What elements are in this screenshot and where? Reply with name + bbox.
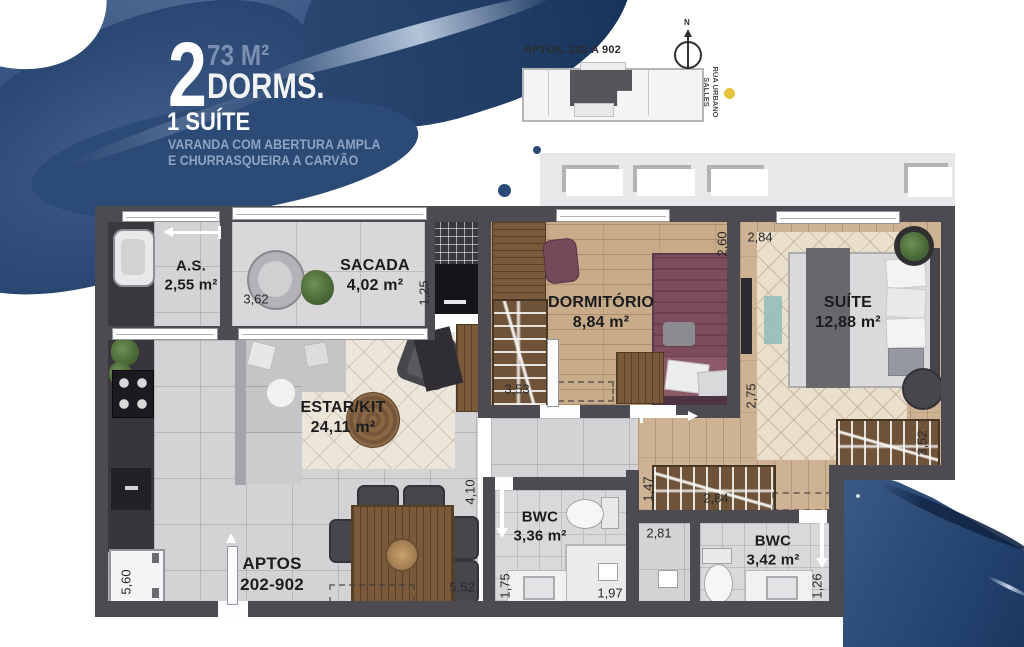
plant-suite [900,232,929,261]
wall-as-divider [220,206,232,338]
room-label-sacada: SACADA 4,02 m² [340,256,410,296]
floorplan-page: 2 73 M² DORMS. 1 SUÍTE VARANDA COM ABERT… [0,0,1024,647]
wall-bottom [95,601,844,617]
sofa-pillow [303,341,330,368]
wall-dorm-bottom [478,405,740,418]
hall-arrow-bar [640,410,643,423]
wall-right-lower [829,465,844,617]
dim-suite-closet: 3,52 [915,430,930,455]
dim-estar-width: 4,10 [463,479,478,504]
laundry-tank-basin [121,239,145,275]
facade-window [908,167,952,197]
splash-droplet [498,184,511,197]
dorm-pillow [697,370,731,398]
header-big-number: 2 [168,32,207,119]
light-switch [658,570,678,588]
street-line2: SALLES [702,67,711,118]
room-area: 12,88 m² [815,313,881,333]
room-area: 3,42 m² [746,551,799,570]
entrance-line1: APTOS [240,553,304,574]
compass-arrowhead [684,29,692,37]
room-label-as: A.S. 2,55 m² [164,257,217,295]
stove-cooktop [112,370,154,418]
bwc1-door-arrow-shaft [500,482,504,530]
side-table [266,378,296,408]
wall-right-upper [941,206,955,480]
bwc1-shower-knob [598,563,618,581]
room-name: A.S. [164,257,217,276]
bwc1-sink-basin [523,576,555,600]
window-as [122,211,220,222]
keyplan-inner-room [574,103,614,117]
dorm-desk [492,221,546,301]
dim-dorm-closet: 3,53 [504,382,529,397]
suite-pillow [885,317,926,348]
entrance-line2: 202-902 [240,574,304,595]
room-label-bwc1: BWC 3,36 m² [513,508,566,546]
dim-kitchen-length: 5,60 [119,569,134,594]
wall-corridor-hall [626,470,639,601]
room-name: BWC [513,508,566,527]
splash-droplet [57,196,67,206]
facade-window [566,169,623,196]
rug-hall-dashed [772,492,832,511]
room-area: 3,36 m² [513,527,566,546]
location-marker-yellow [724,88,735,99]
keyplan-inner-line [648,70,649,116]
wall-corridor2-bwc2 [690,523,700,601]
wall-churras-left [425,206,435,330]
dim-suite-top: 2,84 [747,230,772,245]
wall-bwc1-left [483,477,495,601]
room-name: DORMITÓRIO [548,293,654,313]
room-area: 8,84 m² [548,313,654,333]
sofa-back-left [235,329,246,485]
hall-arrow-line [640,415,688,418]
dim-corridor2: 2,81 [646,526,671,541]
room-area: 4,02 m² [340,276,410,296]
dim-estar-length: 5,52 [449,580,474,595]
bwc2-toilet-tank [702,548,732,564]
street-line1: RUA URBANO [711,67,720,118]
bwc1-door-arrow-head [496,528,508,538]
dim-bwc2-width: 1,26 [810,573,825,598]
bwc1-toilet-bowl [566,499,604,529]
header-desc-line2: E CHURRASQUEIRA A CARVÃO [168,153,358,168]
bbq-counter-handle [444,300,466,304]
keyplan-label: APTOS. 202 A 902 [524,44,621,56]
header-suite: 1 SUÍTE [167,108,250,137]
fridge-hinge [152,553,159,563]
fridge-hinge [152,588,159,598]
wall-left [95,206,108,617]
room-area: 2,55 m² [164,276,217,295]
bbq-counter [430,264,480,314]
entry-door-arrow [226,533,236,543]
sofa-chaise [246,432,302,484]
dim-sacada-depth: 1,25 [417,280,432,305]
dim-hall-closet: 2,84 [703,491,728,506]
window-suite [776,211,900,224]
dim-hall-width: 1,47 [641,476,656,501]
room-label-bwc2: BWC 3,42 m² [746,532,799,570]
entrance-label: APTOS 202-902 [240,553,304,596]
suite-bench-teal [764,296,782,344]
header-desc-line1: VARANDA COM ABERTURA AMPLA [168,137,381,152]
dorm-bench [663,322,695,346]
dorm-door-leaf [547,339,559,407]
sofa-cushion-line [246,432,302,433]
sliding-door-sacada-estar [238,328,428,340]
facade-window [637,169,695,196]
bwc2-toilet-bowl [704,564,733,604]
dorm-chair-maroon [542,237,580,284]
dorm-bed [652,253,734,371]
dim-bwc1-depth: 1,97 [597,586,622,601]
bwc2-sink-basin [766,576,798,600]
suite-pillow [885,287,927,319]
room-name: SUÍTE [815,293,881,313]
dim-bwc1-width: 1,75 [498,573,513,598]
compass-needle [687,36,689,68]
as-opening-arrow-line [172,231,220,234]
room-name: BWC [746,532,799,551]
suite-tv-panel [741,278,752,354]
room-label-estar: ESTAR/KIT 24,11 m² [300,398,385,438]
wall-estar-dorm [478,206,491,418]
bwc1-door-opening [495,477,513,490]
balcony-railing [232,207,427,220]
entry-door-leaf [227,546,238,605]
wall-suite-bottom [829,465,955,480]
keyplan-inner-line [548,70,549,116]
header-dorms: DORMS. [207,67,325,107]
dim-suite-side: 2,75 [744,383,759,408]
hall-arrow-head [688,411,698,421]
window-dormitorio [556,209,670,222]
dim-dorm-side: 2,60 [715,231,730,256]
sliding-door-as-estar [112,328,218,340]
hall-wardrobe [652,465,776,514]
splash-main [843,470,1024,647]
room-label-dormitorio: DORMITÓRIO 8,84 m² [548,293,654,333]
room-name: SACADA [340,256,410,276]
room-label-suite: SUÍTE 12,88 m² [815,293,881,333]
room-name: ESTAR/KIT [300,398,385,418]
suite-headboard [930,248,940,388]
splash-droplet [856,494,860,498]
room-area: 24,11 m² [300,418,385,438]
kitchen-faucet [125,486,138,490]
dim-sacada-width: 3,62 [243,292,268,307]
dorm-nightstand [616,352,664,404]
facade-window [711,169,768,196]
as-opening-arrow-head [163,227,173,237]
as-opening-arrow-bar [218,226,221,239]
street-label: RUA URBANO SALLES [702,67,720,118]
bwc2-door-arrow-shaft [820,518,824,560]
dining-centerpiece [385,538,419,572]
compass-n-label: N [684,18,690,27]
dorm-door-opening [540,405,580,418]
bwc2-door-arrow-head [816,558,828,568]
plant-sacada [301,270,334,305]
suite-stool [902,368,944,410]
